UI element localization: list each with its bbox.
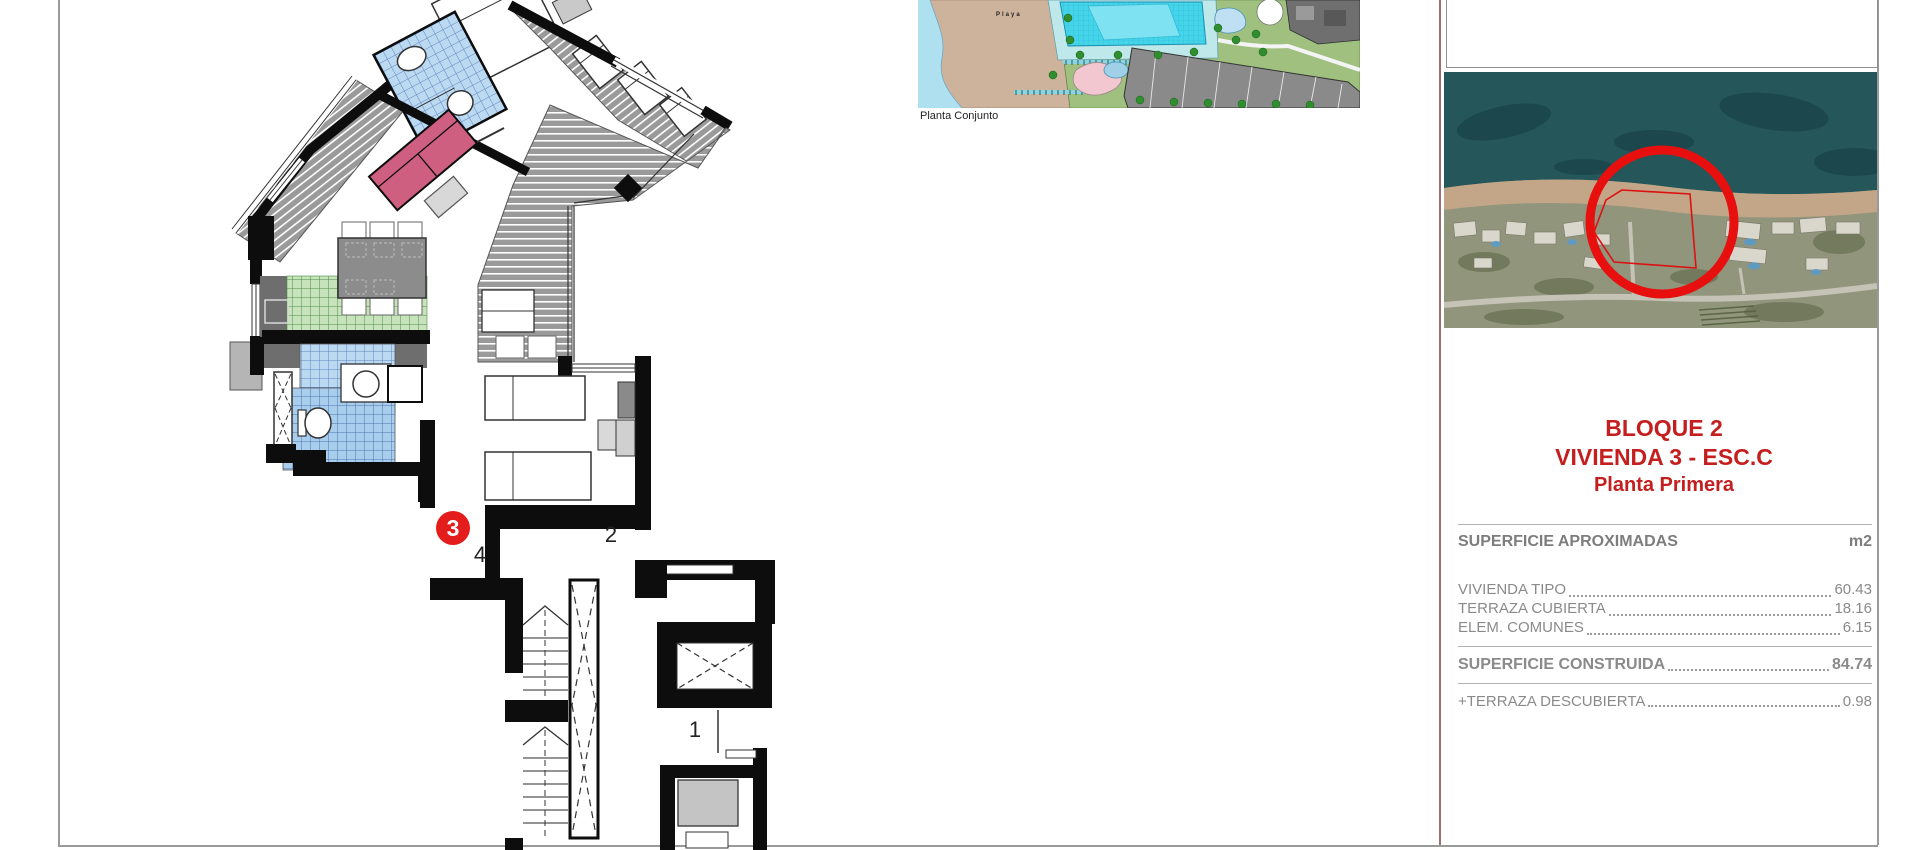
bed-single bbox=[485, 452, 591, 500]
wardrobe bbox=[616, 420, 635, 456]
louver-window bbox=[274, 372, 292, 448]
frame-right bbox=[1877, 0, 1879, 845]
surface-row-value: 6.15 bbox=[1843, 619, 1872, 638]
surface-row-label: VIVIENDA TIPO bbox=[1458, 581, 1566, 600]
site-plan: Playa bbox=[918, 0, 1360, 108]
room-label-bedroom: 2 bbox=[605, 522, 617, 547]
leader-dots bbox=[1648, 704, 1839, 707]
toilet bbox=[305, 408, 331, 438]
surfaces-header: SUPERFICIE APROXIMADAS bbox=[1458, 533, 1678, 551]
room-label-hall: 4 bbox=[474, 542, 486, 567]
surface-table: SUPERFICIE APROXIMADAS m2 VIVIENDA TIPO … bbox=[1458, 524, 1872, 710]
plaza bbox=[1257, 0, 1283, 25]
rug bbox=[686, 832, 728, 848]
dwelling-title: VIVIENDA 3 - ESC.C bbox=[1452, 443, 1876, 472]
surface-row: TERRAZA CUBIERTA 18.16 bbox=[1458, 600, 1872, 619]
nightstand bbox=[552, 0, 591, 24]
unit-marker-label: 3 bbox=[447, 515, 460, 541]
staircase bbox=[430, 505, 598, 850]
block-title: BLOQUE 2 bbox=[1452, 414, 1876, 443]
surface-total-value: 84.74 bbox=[1832, 656, 1872, 674]
leader-dots bbox=[1587, 632, 1840, 635]
surface-row-value: 18.16 bbox=[1834, 600, 1872, 619]
surface-total-row: SUPERFICIE CONSTRUIDA 84.74 bbox=[1458, 656, 1872, 674]
aerial-photo bbox=[1444, 72, 1877, 328]
dining-table bbox=[338, 238, 426, 298]
leader-dots bbox=[1609, 613, 1832, 616]
shower bbox=[388, 366, 422, 402]
surface-total-label: SUPERFICIE CONSTRUIDA bbox=[1458, 656, 1665, 674]
room-label-landing: 1 bbox=[689, 717, 701, 742]
stair-rail bbox=[570, 580, 598, 838]
sink bbox=[353, 371, 379, 397]
title-block-box bbox=[1446, 0, 1878, 68]
surface-row-label: ELEM. COMUNES bbox=[1458, 619, 1584, 638]
chair bbox=[496, 336, 524, 358]
elevator bbox=[635, 560, 775, 708]
surface-row: ELEM. COMUNES 6.15 bbox=[1458, 619, 1872, 638]
chair bbox=[528, 336, 556, 358]
surface-row: VIVIENDA TIPO 60.43 bbox=[1458, 581, 1872, 600]
adjacent-room bbox=[660, 710, 767, 850]
wardrobe bbox=[618, 382, 635, 418]
floor-plan-drawing: 3 4 2 1 bbox=[58, 0, 800, 850]
bed-single bbox=[485, 376, 585, 420]
beach-label: Playa bbox=[996, 12, 1022, 18]
surfaces-unit: m2 bbox=[1849, 533, 1872, 551]
surface-extra-label: +TERRAZA DESCUBIERTA bbox=[1458, 693, 1645, 710]
site-plan-caption: Planta Conjunto bbox=[920, 110, 998, 122]
bed bbox=[678, 780, 738, 826]
panel-titles: BLOQUE 2 VIVIENDA 3 - ESC.C Planta Prime… bbox=[1452, 414, 1876, 498]
surface-extra-row: +TERRAZA DESCUBIERTA 0.98 bbox=[1458, 693, 1872, 710]
surface-row-label: TERRAZA CUBIERTA bbox=[1458, 600, 1606, 619]
floor-title: Planta Primera bbox=[1452, 473, 1876, 499]
dining-area bbox=[338, 222, 426, 315]
leader-dots bbox=[1569, 594, 1831, 597]
surface-extra-value: 0.98 bbox=[1843, 693, 1872, 710]
leader-dots bbox=[1668, 668, 1829, 671]
unit-marker-3: 3 bbox=[436, 511, 470, 545]
surface-row-value: 60.43 bbox=[1834, 581, 1872, 600]
panel-separator-line bbox=[1439, 0, 1441, 845]
plan-sheet: { "floorplan": { "unit_marker": "3", "ha… bbox=[0, 0, 1920, 850]
